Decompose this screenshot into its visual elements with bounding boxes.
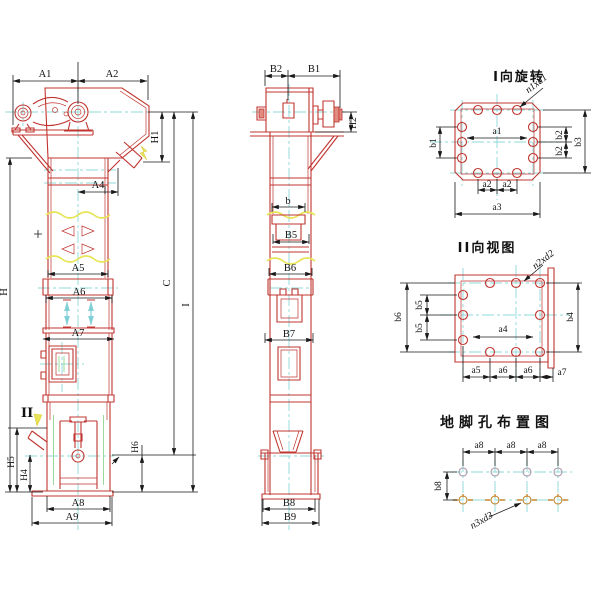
dim-label-b4: b4 [566,312,576,322]
dim-label-h5: H5 [7,456,17,468]
dim-label-a2b: a2 [503,180,512,190]
dim-label-h4: H4 [20,469,30,481]
dim-label-b8: b8 [434,481,444,491]
dim-label-a6b: a6 [524,366,533,376]
side-centerlines [252,84,346,530]
dim-label-h6: H6 [131,441,141,453]
side-view: B2 B1 H2 b B5 B6 B7 B8 B9 [250,64,359,530]
front-view: A1 A2 A4 A5 A6 A7 A8 A9 H H1 C I H5 H4 H… [0,62,198,530]
dim-label-a7: a7 [558,368,567,378]
dim-label-b2: b2 [555,130,565,140]
front-head-geometry [12,88,149,173]
view1-centerlines [430,94,562,200]
section-ii-arrow [34,414,42,426]
dim-label-b2-cap: B2 [270,64,282,75]
dim-label-b2b: b2 [555,146,565,156]
view1-flange: I向旋转 n1xd1 a1 a2 a2 a3 b1 b2 b2 b3 [429,69,591,218]
dim-label-a1: a1 [493,127,502,137]
dim-label-b5-cap: B5 [285,230,297,241]
dim-label-b7-cap: B7 [283,329,295,340]
front-casing-geometry [34,158,114,402]
dim-label-a9-cap: A9 [66,512,79,523]
dim-label-a4: a4 [499,325,508,335]
dim-label-b8-cap: B8 [283,498,295,509]
dim-label-a6: a6 [499,366,508,376]
view2-title: II向视图 [458,240,517,256]
dim-label-a8: a8 [475,441,484,451]
dim-label-b9-cap: B9 [284,512,296,523]
dim-label-a4-cap: A4 [92,180,106,191]
dim-label-a2: a2 [483,180,492,190]
dim-label-a2-cap: A2 [106,69,119,80]
dim-label-a1-cap: A1 [39,69,52,80]
dim-label-a8-cap: A8 [72,498,85,509]
anchor-holes [453,468,568,504]
side-dimensions [262,70,357,526]
dim-label-h: H [0,288,10,296]
dim-label-a8c: a8 [538,441,547,451]
section-ii-marker: II [21,406,33,421]
dim-label-b6-cap: B6 [284,263,296,274]
dim-label-a6-cap: A6 [73,287,86,298]
dim-label-h1: H1 [150,131,161,144]
dim-label-b1-cap: B1 [308,64,320,75]
anchor-title: 地脚孔布置图 [440,414,554,431]
dim-label-a5-cap: A5 [72,263,85,274]
dim-label-b1: b1 [429,138,439,148]
dim-label-b5: b5 [415,300,425,310]
anchor-layout: 地脚孔布置图 a8 a8 a8 b8 n3xd3 [434,414,572,532]
anchor-dimensions [443,448,558,517]
view1-geometry [455,103,540,180]
anchor-leader-n3xd3: n3xd3 [468,510,495,532]
dim-label-i: I [181,303,192,307]
dim-label-a8b: a8 [507,441,516,451]
dim-label-b5b: b5 [415,323,425,333]
dim-label-c: C [162,279,173,286]
drawing-canvas: A1 A2 A4 A5 A6 A7 A8 A9 H H1 C I H5 H4 H… [0,0,600,600]
view2-flange: II向视图 n2xd2 a4 a5 a6 a6 a7 b4 b5 b5 b6 [394,240,582,385]
dim-label-b-small: b [285,196,290,207]
yellow-flash-mark [140,146,147,160]
dim-label-b6: b6 [394,312,404,322]
elevator-drawing-svg: A1 A2 A4 A5 A6 A7 A8 A9 H H1 C I H5 H4 H… [0,0,600,600]
dim-label-a3: a3 [493,203,502,213]
dim-label-b3: b3 [574,137,584,147]
side-geometry [250,88,344,499]
dim-label-a5: a5 [472,366,481,376]
dim-label-h2: H2 [349,117,359,129]
anchor-centerlines [450,460,572,512]
dim-label-a7-cap: A7 [72,328,85,339]
